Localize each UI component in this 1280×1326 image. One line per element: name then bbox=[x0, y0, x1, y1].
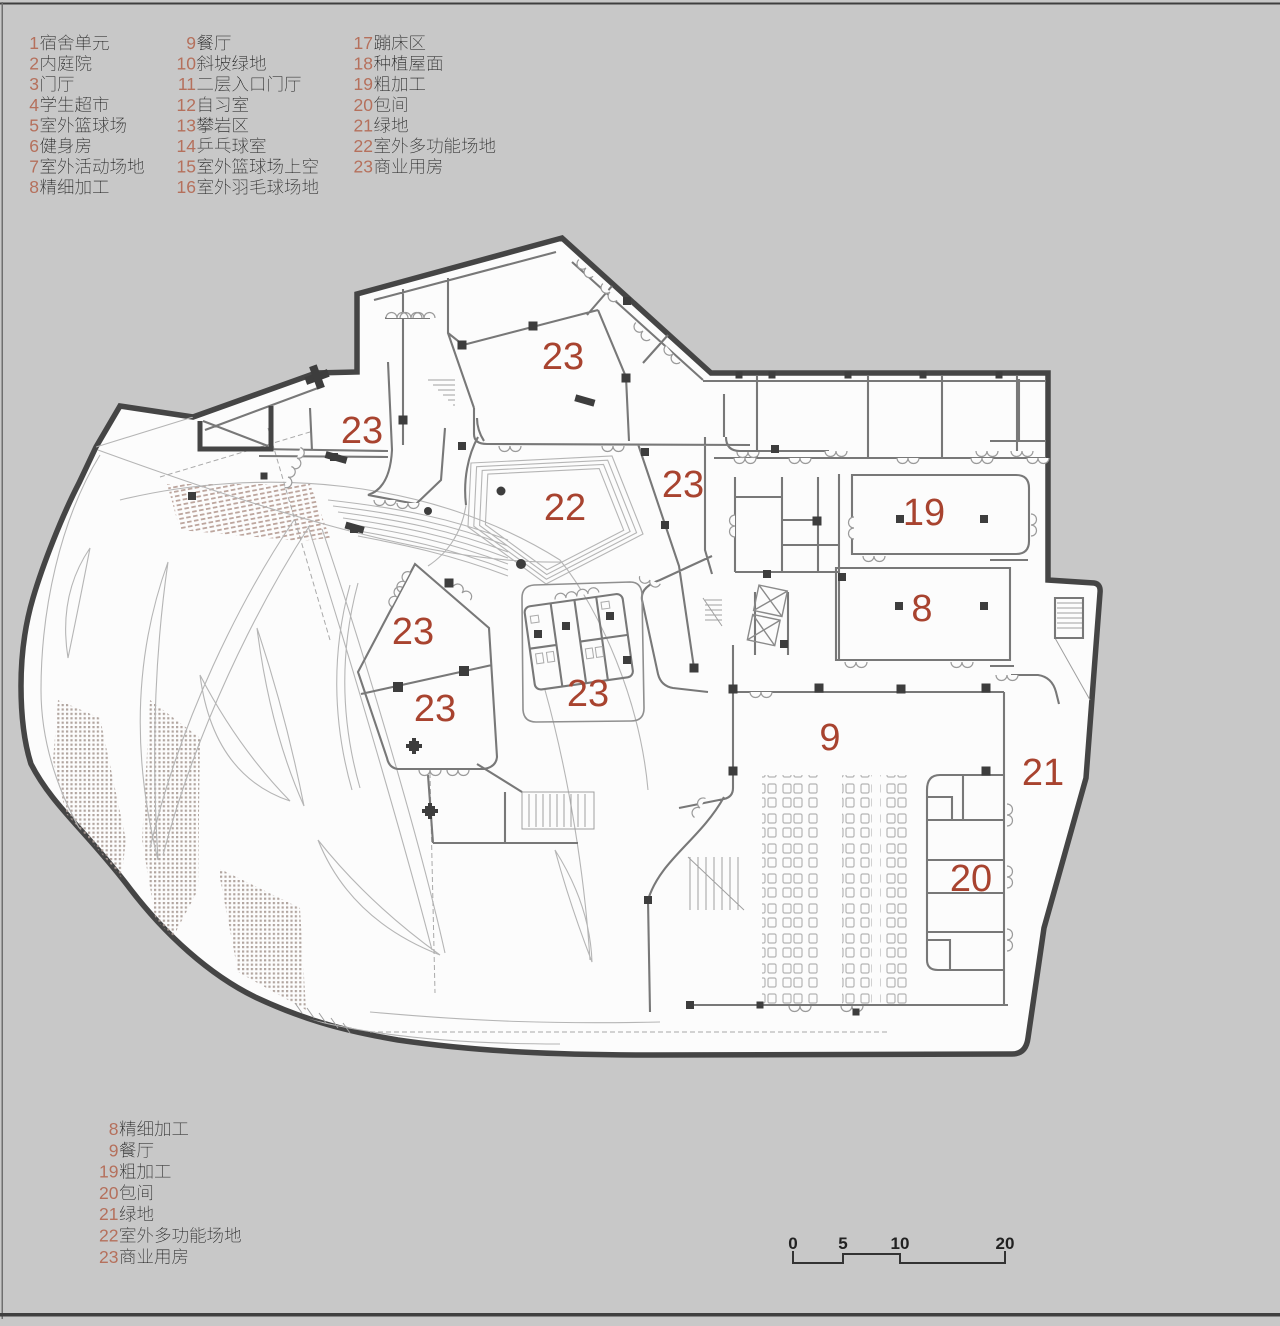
svg-text:3: 3 bbox=[29, 74, 39, 94]
svg-text:19: 19 bbox=[99, 1162, 118, 1182]
svg-text:20: 20 bbox=[99, 1183, 119, 1203]
svg-text:9: 9 bbox=[109, 1140, 119, 1160]
svg-text:12: 12 bbox=[177, 95, 196, 115]
svg-text:9: 9 bbox=[819, 717, 840, 759]
svg-text:23: 23 bbox=[662, 464, 704, 506]
svg-text:23: 23 bbox=[392, 611, 434, 653]
svg-text:21: 21 bbox=[99, 1204, 118, 1224]
svg-text:2: 2 bbox=[29, 54, 39, 74]
svg-text:23: 23 bbox=[341, 410, 383, 452]
svg-text:23: 23 bbox=[414, 688, 456, 730]
svg-text:22: 22 bbox=[544, 487, 586, 529]
svg-text:22: 22 bbox=[99, 1226, 118, 1246]
svg-text:19: 19 bbox=[903, 492, 945, 534]
svg-text:21: 21 bbox=[354, 115, 373, 135]
svg-text:0: 0 bbox=[788, 1234, 797, 1253]
svg-text:9: 9 bbox=[186, 33, 196, 53]
svg-text:17: 17 bbox=[354, 33, 373, 53]
svg-text:5: 5 bbox=[838, 1234, 847, 1253]
svg-text:16: 16 bbox=[177, 177, 196, 197]
svg-text:4: 4 bbox=[29, 95, 39, 115]
svg-text:23: 23 bbox=[567, 673, 609, 715]
svg-text:23: 23 bbox=[99, 1247, 118, 1267]
svg-text:10: 10 bbox=[891, 1234, 910, 1253]
svg-text:10: 10 bbox=[177, 54, 197, 74]
svg-text:14: 14 bbox=[177, 136, 197, 156]
svg-text:13: 13 bbox=[177, 115, 196, 135]
svg-text:1: 1 bbox=[29, 33, 39, 53]
svg-text:15: 15 bbox=[177, 157, 196, 177]
svg-text:22: 22 bbox=[354, 136, 373, 156]
svg-text:8: 8 bbox=[29, 177, 39, 197]
svg-text:23: 23 bbox=[354, 157, 373, 177]
svg-text:11: 11 bbox=[178, 74, 196, 94]
svg-text:20: 20 bbox=[354, 95, 374, 115]
svg-text:8: 8 bbox=[911, 588, 932, 630]
svg-text:19: 19 bbox=[354, 74, 373, 94]
svg-text:18: 18 bbox=[354, 54, 373, 74]
svg-text:7: 7 bbox=[29, 157, 39, 177]
svg-text:6: 6 bbox=[29, 136, 39, 156]
svg-text:8: 8 bbox=[109, 1119, 119, 1139]
svg-text:20: 20 bbox=[996, 1234, 1015, 1253]
svg-text:23: 23 bbox=[542, 336, 584, 378]
svg-text:21: 21 bbox=[1022, 752, 1064, 794]
svg-text:5: 5 bbox=[29, 115, 39, 135]
svg-text:20: 20 bbox=[950, 858, 992, 900]
